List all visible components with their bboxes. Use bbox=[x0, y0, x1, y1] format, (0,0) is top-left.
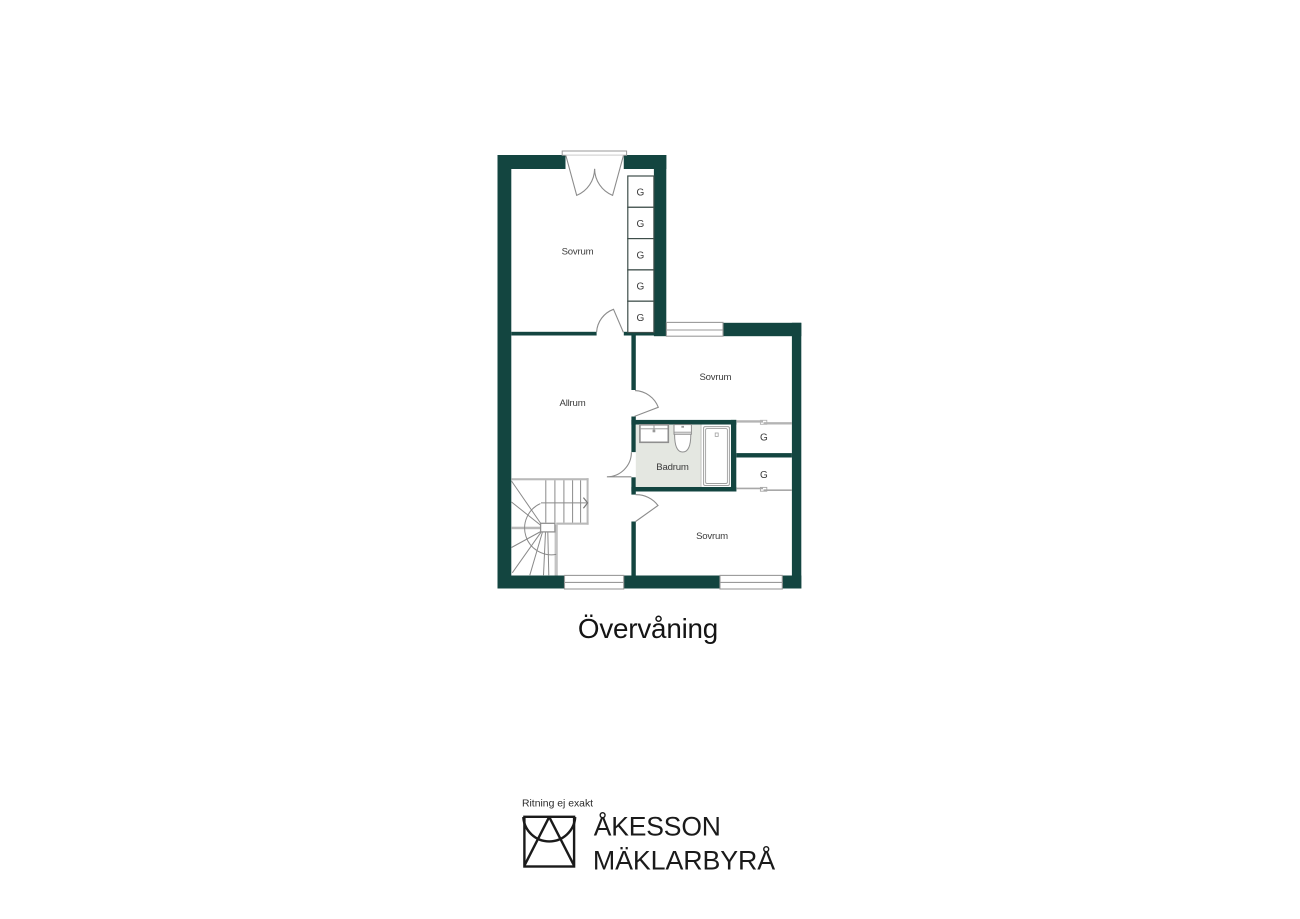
svg-text:G: G bbox=[637, 313, 645, 324]
svg-text:Badrum: Badrum bbox=[656, 462, 689, 473]
svg-text:Sovrum: Sovrum bbox=[696, 531, 728, 542]
svg-text:G: G bbox=[637, 250, 645, 261]
svg-text:G: G bbox=[637, 282, 645, 293]
svg-text:Sovrum: Sovrum bbox=[699, 372, 731, 383]
svg-text:G: G bbox=[637, 188, 645, 199]
svg-text:Ritning ej exakt: Ritning ej exakt bbox=[522, 798, 593, 809]
svg-text:G: G bbox=[760, 470, 768, 481]
svg-text:Allrum: Allrum bbox=[560, 398, 586, 409]
svg-text:G: G bbox=[760, 432, 768, 443]
svg-text:MÄKLARBYRÅ: MÄKLARBYRÅ bbox=[593, 845, 775, 876]
svg-text:Övervåning: Övervåning bbox=[578, 613, 718, 644]
svg-text:G: G bbox=[637, 219, 645, 230]
svg-text:ÅKESSON: ÅKESSON bbox=[594, 812, 721, 842]
svg-text:Sovrum: Sovrum bbox=[562, 247, 594, 258]
